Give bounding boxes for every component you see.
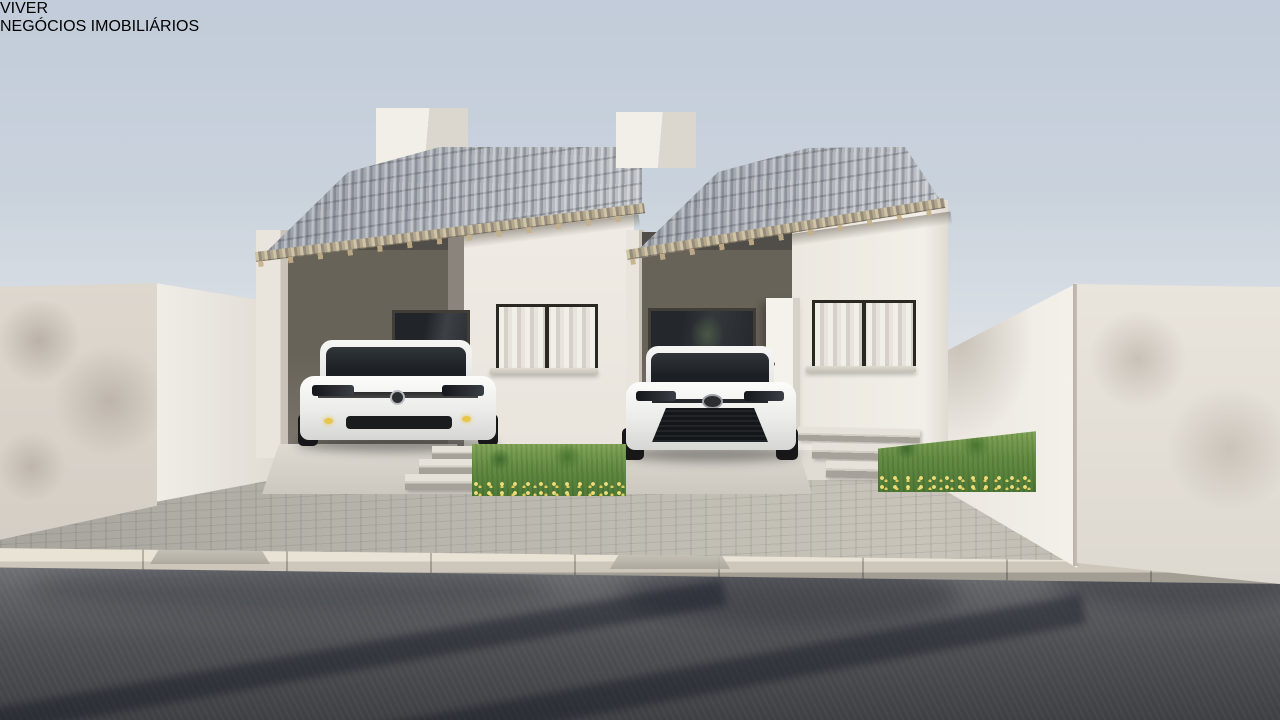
fog-light-left	[324, 418, 333, 424]
window-mullion	[862, 303, 866, 367]
headlight-right	[442, 385, 484, 396]
steps-right-1	[798, 427, 920, 444]
flower-row	[472, 480, 626, 496]
palm-frond	[914, 360, 954, 411]
palm-frond	[902, 368, 976, 404]
vw-emblem	[390, 390, 405, 405]
left-boundary-wall-front	[0, 283, 157, 545]
bumper-grille-lower	[652, 408, 768, 442]
architectural-render-scene: VIVER NEGÓCIOS IMOBILIÁRIOS	[0, 0, 1280, 720]
palm-frond	[896, 384, 984, 387]
bumper-intake	[346, 416, 452, 429]
car-toyota-white	[622, 346, 804, 468]
palm-frond	[930, 351, 936, 421]
car-vw-white	[292, 338, 504, 456]
palm-frond	[906, 364, 960, 409]
toyota-emblem	[702, 394, 723, 409]
palm-frond	[916, 352, 962, 420]
right-boundary-wall-front	[1077, 284, 1280, 584]
palm-frond	[899, 377, 975, 396]
flower-row	[878, 474, 1036, 490]
watermark-brand-text: VIVER	[0, 0, 199, 18]
palm-frond	[924, 353, 951, 420]
watermark-tagline-text: NEGÓCIOS IMOBILIÁRIOS	[0, 18, 199, 36]
palm-frond	[928, 360, 932, 411]
fog-light-right	[462, 416, 471, 422]
palm-frond	[899, 378, 967, 395]
watermark: VIVER NEGÓCIOS IMOBILIÁRIOS	[0, 0, 199, 36]
palm-frond	[903, 369, 964, 404]
house-right-roof-box	[616, 112, 696, 168]
headlight-left	[636, 391, 676, 401]
garden-bed-left	[472, 444, 626, 496]
headlight-right	[744, 391, 784, 401]
palm-frond	[902, 369, 972, 403]
palm-trunk	[895, 222, 909, 386]
headlight-left	[312, 385, 354, 396]
palm-frond	[899, 379, 978, 393]
palm-frond	[908, 360, 971, 413]
